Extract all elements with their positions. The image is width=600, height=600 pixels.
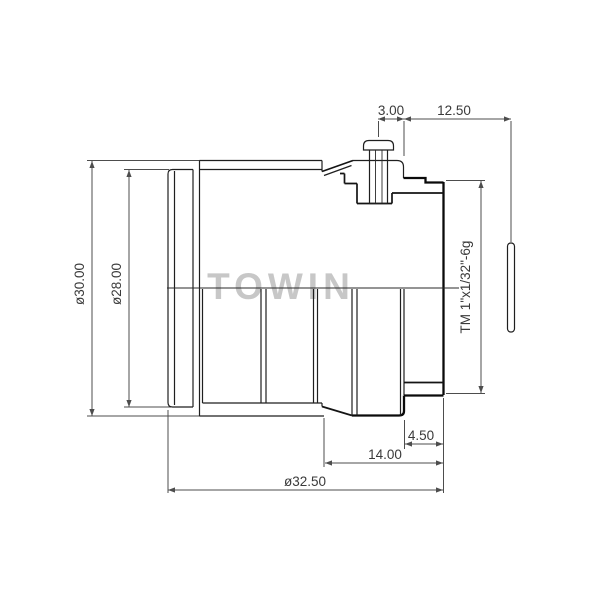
- dim-body-diameter-label: ø30.00: [72, 263, 87, 305]
- drawing-canvas: TOWIN: [0, 0, 600, 600]
- set-screw-cap: [364, 141, 394, 151]
- dim-thread-length-label: 4.50: [408, 428, 434, 443]
- lens-technical-drawing: TOWIN: [0, 0, 600, 600]
- dim-front-diameter-label: ø28.00: [109, 263, 124, 305]
- dim-mount-thread-label: TM 1"x1/32"-6g: [458, 241, 473, 334]
- dim-overall-length-label: ø32.50: [284, 474, 326, 489]
- dim-rear-section-length-label: 14.00: [368, 447, 402, 462]
- image-plane-bar: [508, 243, 515, 332]
- dim-flange-focal-distance-label: 12.50: [437, 103, 471, 118]
- mount-thread-section: [340, 174, 444, 396]
- set-screw: [364, 141, 394, 204]
- watermark-text: TOWIN: [207, 266, 355, 307]
- dim-screw-to-flange-label: 3.00: [378, 103, 404, 118]
